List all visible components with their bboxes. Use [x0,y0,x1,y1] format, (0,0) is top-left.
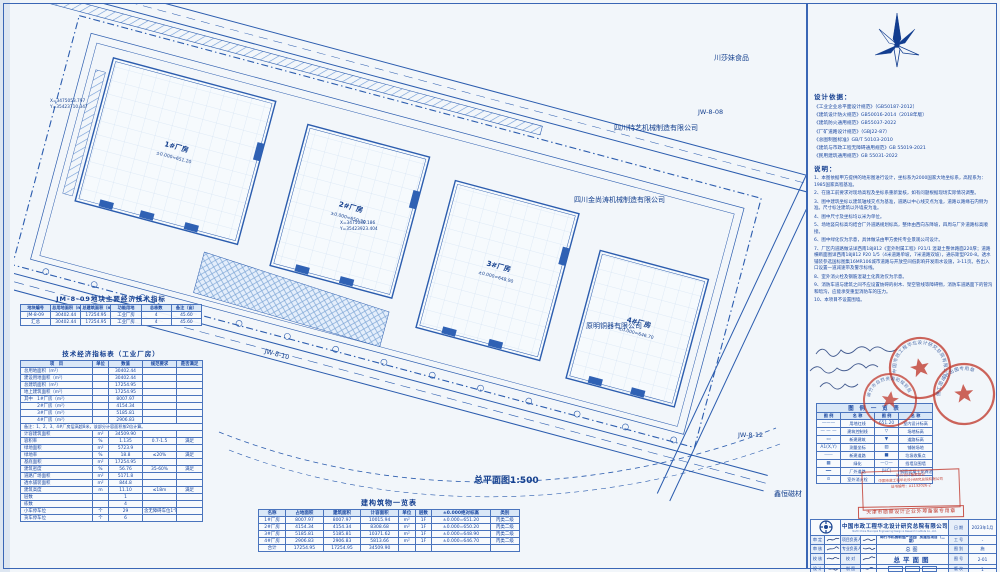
column-header: 类别 [490,510,519,517]
table-row: 建筑高度m 11.10≤18m 满足 [21,487,203,494]
legend-symbol: ▭ [817,436,841,444]
column-header: 图 例 [875,413,899,420]
scan-edge [0,0,10,572]
legend-row: — — — 建筑控制线 ▽ 场地标高 [817,428,933,436]
column-header: 名 称 [841,413,875,420]
right-label: 版 次 [949,565,969,572]
tech-indicator-block: 技术经济指标表（工业厂房） 项 目单位数值规范要求是否满足 总用地面积（m²） … [20,346,202,522]
right-value: 1 [969,565,997,572]
design-basis-item: 《工业企业总平面设计规范》（GB50187-2012） [814,104,994,112]
table-row: 地上建筑面积（m²） 17254.95 [21,389,203,396]
table-row: 其中 1#厂房（m²） 8007.97 [21,396,203,403]
column-header: 总用地面积（m²） [51,305,81,312]
table-row: 小车停车位个 29含无障碍车位1个 [21,508,203,515]
legend-row: ——— 用地红线 651.20 室内设计标高 [817,420,933,428]
survey-coord-x-1: X=3475053.797 [50,98,86,104]
project-name: 绵竹市机械制造产业园厂房建设项目（二期） [877,536,949,545]
column-header: 图 例 [817,413,841,420]
design-basis-item: 《建筑防火通用规范》GB55037-2022 [814,120,994,128]
design-basis-list: 《工业企业总平面设计规范》（GB50187-2012）《建筑设计防火规范》GB5… [814,104,994,162]
table-row: 合计17254.95 17254.9534509.90 [259,545,520,552]
design-basis-item: 《总图制图标准》GB/T 50103-2010 [814,137,994,145]
parcel-label-jw-8-08: JW-8-08 [697,108,723,116]
drawing-sheet-name: 总平面图 [877,554,949,565]
column-header: 总栋数 [141,305,171,312]
design-basis-section: 设计依据： 《工业企业总平面设计规范》（GB50187-2012）《建筑设计防火… [814,91,994,162]
note-item: 7、厂区内道路做法详西南18J812《室外附属工程》P21/1 混凝土整体路面2… [814,247,994,273]
legend-symbol: ▼ [875,436,899,444]
note-item: 8、室外消火栓及钢筋混凝土化粪池仅为示意。 [814,275,994,282]
note-item: 10、本项目不设置围墙。 [814,298,994,305]
table-row: 层数 1 [21,494,203,501]
legend-name: 挡墙及围墙 [899,460,933,468]
legend-row: ▭ 新建建筑 ▼ 道路标高 [817,436,933,444]
signature [825,554,841,565]
building-list-block: 建构筑物一览表 名称占地面积建筑面积计容面积单位层数±0.000绝对标高类别 1… [258,498,520,552]
table-row: 容积率% 1.1350.7-1.5 满足 [21,438,203,445]
legend-row: ┄┄┄ 新建道路 ■ 垃圾收集点 [817,452,933,460]
table-row: 2#厂房（m²） 4154.34 [21,403,203,410]
sign-role: 专业负责人 [841,545,861,554]
company-name: 中国市政工程华北设计研究总院有限公司 [842,522,947,530]
building-table-header-row: 名称占地面积建筑面积计容面积单位层数±0.000绝对标高类别 [259,510,520,517]
registration-box-stamp: 进川设计备案登记 中国市政工程华北设计研究总院有限公司 证书编号：A113202… [861,468,960,510]
right-value: - [969,536,997,545]
legend-name: 铺装场地 [899,444,933,452]
drawing-set-name: 总图 [877,545,949,554]
building-3: 3#厂房 ±0.000=648.90 [416,181,579,361]
north-compass-icon [860,7,934,85]
legend-symbol: — — — [817,428,841,436]
site-table-title: JM-8-09地块主要经济技术指标 [20,293,202,303]
right-label: 图 号 [949,554,969,565]
legend-symbol: ⊙ [817,476,841,484]
legend-name: 建筑控制线 [841,428,875,436]
table-row: 货车停车位个 6 [21,515,203,522]
table-row: 4#厂房（m²） 2906.83 [21,417,203,424]
legend-symbol: ■ [875,452,899,460]
survey-coord-y-2: Y=35423923.404 [339,226,378,232]
column-header: 规范要求 [143,361,177,368]
site-indicator-table: 地块编号总用地面积（m²）总建筑面积（m²）功能用地总栋数备注（亩） JM-8-… [20,304,202,326]
table-row: 4#厂房2906.83 2906.835813.66 m²1F ±0.000=6… [259,538,520,545]
column-header: 单位 [93,361,109,368]
table-row: JM-8-0930402.44 17254.95工业厂房 445.60 [21,312,202,319]
date-label: 日 期 [949,520,969,536]
building-2: 2#厂房 ±0.000=650.20 [270,124,429,298]
legend-name: 测量坐标 [841,444,875,452]
design-basis-item: 《厂矿道路设计规范》（GBJ22-87） [814,129,994,137]
notes-section: 说明： 1、本图依据甲方提供的地形图进行设计，坐标系为2000国家大地坐标系，高… [814,163,994,307]
plan-scale-label: 总平面图1:500 [474,474,539,486]
table-row: 计容建筑面积m² 34509.90 [21,431,203,438]
legend-symbol: ——— [817,420,841,428]
sign-role: 审 定 [811,536,825,545]
table-row: 总用地面积（m²） 30402.44 [21,368,203,375]
design-basis-item: 《民用建筑通用规范》GB 55031-2022 [814,153,994,161]
note-item: 5、场地竖向标高均结合厂外道路规划标高，整体由西向东降坡，四周与厂外道路标高顺接… [814,223,994,236]
right-value: 施 [969,545,997,554]
legend-name: 用地红线 [841,420,875,428]
signature [825,536,841,545]
column-header: 地块编号 [21,305,51,312]
building-list-table: 名称占地面积建筑面积计容面积单位层数±0.000绝对标高类别 1#厂房8007.… [258,509,520,552]
legend-name: 新建建筑 [841,436,875,444]
signature [861,554,877,565]
design-basis-item: 《建筑设计防火规范》GB50016-2014（2018年版） [814,112,994,120]
design-basis-item: 《建筑与市政工程无障碍通用规范》GB 55019-2021 [814,145,994,153]
company-logo [811,520,841,536]
legend-name: 道路标高 [899,436,933,444]
legend-row: ▩ 绿化 —○— 挡墙及围墙 [817,460,933,468]
legend-title: 图 例 一 览 表 [817,404,933,413]
table-row: 2#厂房4154.34 4154.348308.68 m²1F ±0.000=6… [259,524,520,531]
column-header: 名 称 [899,413,933,420]
neighbor-label-xinheng: 鑫恒磁材 [774,489,802,498]
table-row: 透水铺装面积m² 844.8 [21,480,203,487]
table-row: 栋数 4 [21,501,203,508]
note-item: 4、图中尺寸及坐标均以米为单位。 [814,215,994,222]
tech-indicator-table: 项 目单位数值规范要求是否满足 总用地面积（m²） 30402.44 建设用地面… [20,360,203,522]
column-header: 单位 [398,510,415,517]
table-row: 绿地面积m² 5723.9 [21,445,203,452]
sign-role: 校 核 [811,554,825,565]
table-row: 建筑密度% 56.7635-60% 满足 [21,466,203,473]
parcel-label-jw-8-12: JW-8-12 [737,431,763,439]
table-row: 汇总30402.44 17254.95工业厂房 445.60 [21,319,202,326]
legend-name: 垃圾收集点 [899,452,933,460]
signature [825,565,841,572]
dashed-setback-line-2 [229,444,780,497]
right-label: 工 号 [949,536,969,545]
table-row: 3#厂房（m²） 5185.81 [21,410,203,417]
legend-symbol: ▩ [817,460,841,468]
site-indicator-block: JM-8-09地块主要经济技术指标 地块编号总用地面积（m²）总建筑面积（m²）… [20,293,202,326]
sign-role: 校 对 [841,554,861,565]
neighbor-label-jinshangtao: 四川金尚涛机械制造有限公司 [574,195,665,204]
sign-role: 项目负责人 [841,536,861,545]
legend-name: 场地标高 [899,428,933,436]
misc-boxes [877,565,949,572]
company-name-en: North China Municipal Engineering Design… [847,530,942,533]
table-row: 基底面积m² 17254.95 [21,459,203,466]
column-header: 总建筑面积（m²） [81,305,111,312]
sign-role: 制 图 [841,565,861,572]
legend-symbol: A1(X,Y) [817,444,841,452]
drawing-date: 2023年1月 [969,520,997,536]
legend-symbol: ━━ [817,468,841,476]
signature [861,536,877,545]
column-header: 是否满足 [177,361,203,368]
table-row: 总建筑面积（m²） 17254.95 [21,382,203,389]
table-row: 道路广场面积m² 5171.8 [21,473,203,480]
neighbor-label-chuanshamei: 川莎妹食品 [714,53,749,62]
legend-title-row: 图 例 一 览 表 [817,404,933,413]
note-item: 2、在施工前要求对现场高程及坐标系重新复核，如有问题根据现场实际情况调整。 [814,191,994,198]
panel-divider [806,3,808,569]
column-header: 功能用地 [111,305,141,312]
column-header: 层数 [415,510,432,517]
neighbor-label-teyi: 四川特艺机械制造有限公司 [614,123,698,132]
signature [861,565,877,572]
table-row: 建设用地面积（m²） 30402.44 [21,375,203,382]
legend-header-row: 图 例名 称图 例名 称 [817,413,933,420]
legend-symbol: 651.20 [875,420,899,428]
legend-symbol: ▨ [875,444,899,452]
note-item: 6、图中绿化仅为示意，具体做法由甲方委托专业景观公司设计。 [814,238,994,245]
column-header: 名称 [259,510,286,517]
column-header: 项 目 [21,361,93,368]
signature [825,545,841,554]
company-name-cell: 中国市政工程华北设计研究总院有限公司 North China Municipal… [841,520,949,536]
legend-symbol: ▽ [875,428,899,436]
legend-name: 新建道路 [841,452,875,460]
building-table-title: 建构筑物一览表 [258,498,520,508]
column-header: 建筑面积 [323,510,361,517]
column-header: 备注（亩） [171,305,201,312]
tech-note-row: 备注：1、2、3、4#厂房层高超8米，该部分计容面积按2倍计算。 [21,424,203,431]
table-row: 3#厂房5185.81 5185.8110371.62 m²1F ±0.000=… [259,531,520,538]
signature [861,545,877,554]
notes-list: 1、本图依据甲方提供的地形图进行设计，坐标系为2000国家大地坐标系，高程系为：… [814,176,994,305]
column-header: 数值 [109,361,143,368]
table-row: 绿地率% 18.8≤20% 满足 [21,452,203,459]
site-table-header-row: 地块编号总用地面积（m²）总建筑面积（m²）功能用地总栋数备注（亩） [21,305,202,312]
column-header: ±0.000绝对标高 [432,510,490,517]
column-header: 占地面积 [286,510,324,517]
building-1: 1#厂房 ±0.000=651.20 [75,58,276,244]
tech-table-note: 备注：1、2、3、4#厂房层高超8米，该部分计容面积按2倍计算。 [21,424,203,431]
note-item: 3、图中建筑坐标以建筑轴线交点为基准，道路以中心线交点为准，道路以路缘石内侧为准… [814,200,994,213]
legend-symbol: ┄┄┄ [817,452,841,460]
legend-row: A1(X,Y) 测量坐标 ▨ 铺装场地 [817,444,933,452]
note-item: 9、消防车道与建筑之间不应设置妨碍的树木、架空管线等障碍物，消防车道路面下的管沟… [814,283,994,296]
survey-coord-y-1: Y=35423710.347 [49,104,88,110]
right-value: 2-01 [969,554,997,565]
legend-symbol: —○— [875,460,899,468]
right-label: 图 别 [949,545,969,554]
note-item: 1、本图依据甲方提供的地形图进行设计，坐标系为2000国家大地坐标系，高程系为：… [814,176,994,189]
sign-role: 设 计 [811,565,825,572]
legend-name: 绿化 [841,460,875,468]
parcel-label-jw-8-10: JW-8-10 [263,347,290,362]
drawing-sheet: 1#厂房 ±0.000=651.20 2#厂房 ±0.000=650.20 [0,0,1000,572]
design-basis-title: 设计依据： [814,91,994,101]
survey-coord-x-2: X=3475039.186 [340,220,376,226]
neighbor-label-yuanming: 原明铜器有限公司 [586,321,642,330]
notes-title: 说明： [814,163,994,173]
column-header: 计容面积 [361,510,399,517]
filing-bar-stamp: 天津市勘察设计企业外埠备案专用章 [858,505,964,519]
table-row: 1#厂房8007.97 8007.9710015.94 m²1F ±0.000=… [259,517,520,524]
title-block: 中国市政工程华北设计研究总院有限公司 North China Municipal… [810,519,996,572]
sign-role: 审 核 [811,545,825,554]
tech-table-header-row: 项 目单位数值规范要求是否满足 [21,361,203,368]
dashed-setback-line [219,428,776,482]
legend-name: 室内设计标高 [899,420,933,428]
tech-table-title: 技术经济指标表（工业厂房） [20,348,202,358]
